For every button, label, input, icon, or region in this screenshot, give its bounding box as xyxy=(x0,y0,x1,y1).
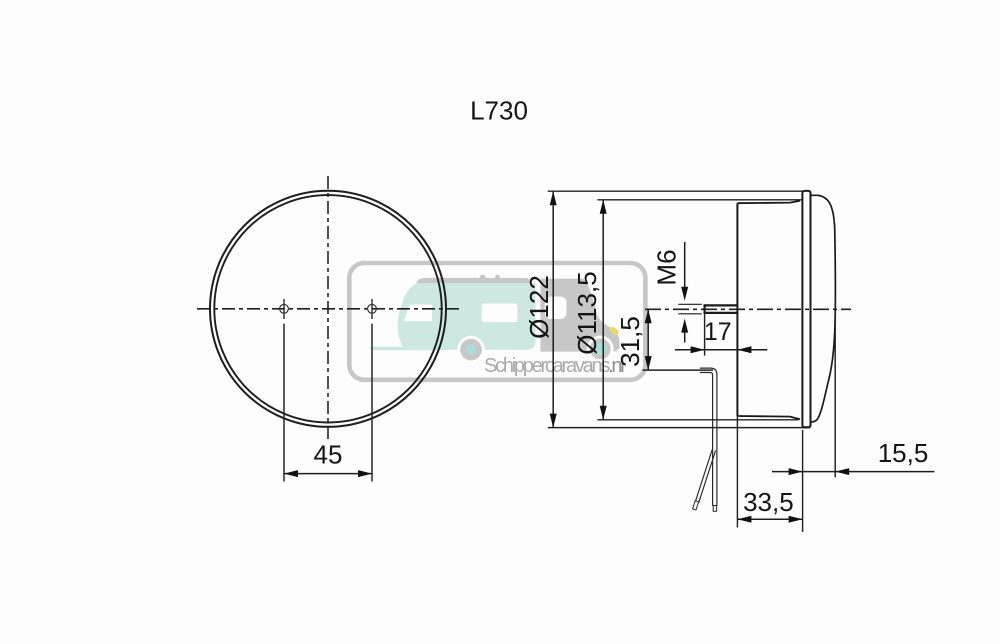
svg-text:L730: L730 xyxy=(470,96,528,126)
svg-text:15,5: 15,5 xyxy=(878,438,929,468)
svg-text:Ø113,5: Ø113,5 xyxy=(572,271,602,354)
svg-text:M6: M6 xyxy=(652,249,682,285)
svg-text:Ø122: Ø122 xyxy=(524,275,554,339)
svg-text:45: 45 xyxy=(314,439,343,469)
svg-text:31,5: 31,5 xyxy=(615,316,645,367)
svg-text:17: 17 xyxy=(704,318,732,346)
svg-text:33,5: 33,5 xyxy=(743,487,794,517)
